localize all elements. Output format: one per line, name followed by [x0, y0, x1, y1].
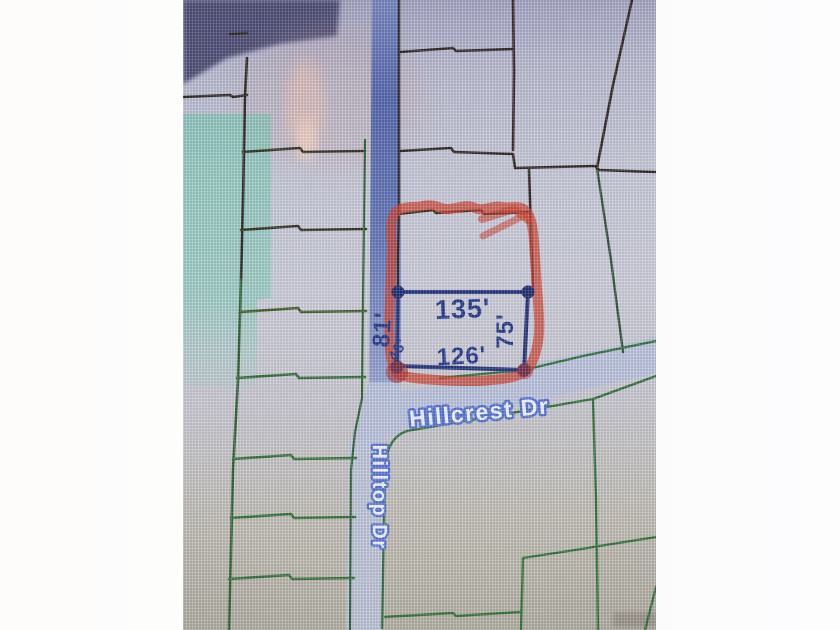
- parcel-line: [385, 612, 520, 617]
- parcel-line: [597, 168, 623, 352]
- parcel-line: [240, 308, 366, 312]
- parcel-line: [233, 455, 356, 459]
- parcel-line: [231, 514, 355, 518]
- parcel-line: [400, 148, 656, 172]
- dimension-label-bottom: 126': [436, 342, 487, 372]
- parcel-line: [521, 558, 523, 630]
- parcel-line: [513, 0, 514, 150]
- map-canvas[interactable]: 135' 126' 75' 81' 43' Hillcrest Dr Hillt…: [183, 0, 656, 630]
- selection-overlay-area: [183, 114, 271, 386]
- measure-line-right: [524, 292, 528, 370]
- parcel-line: [183, 95, 247, 97]
- map-drawing: 135' 126' 75' 81' 43' Hillcrest Dr Hillt…: [183, 0, 656, 630]
- dimension-label-top: 135': [434, 293, 490, 325]
- parcel-line: [593, 399, 598, 630]
- dimension-label-right: 75': [492, 313, 519, 348]
- photo-frame: 135' 126' 75' 81' 43' Hillcrest Dr Hillt…: [0, 0, 840, 630]
- highlight-lot-boundary: [398, 214, 399, 290]
- parcel-line: [597, 0, 632, 168]
- street-label-hilltop: Hilltop Dr: [368, 445, 390, 550]
- watermark-smudge: [613, 612, 656, 627]
- parcel-line: [230, 33, 247, 34]
- survey-point-dot: [522, 286, 535, 299]
- parcel-line: [229, 575, 354, 579]
- parcel-line: [523, 537, 656, 558]
- parcel-line: [400, 48, 513, 52]
- survey-point-dot: [392, 286, 405, 299]
